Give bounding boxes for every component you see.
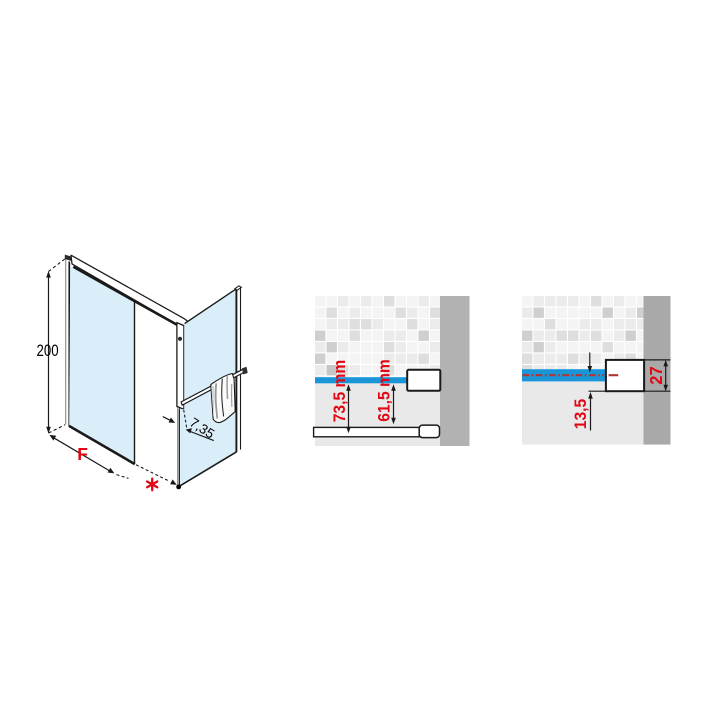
svg-text:13,5: 13,5 <box>571 399 590 429</box>
svg-text:73,5 mm: 73,5 mm <box>330 360 349 423</box>
svg-text:61,5 mm: 61,5 mm <box>375 359 394 422</box>
svg-text:F: F <box>77 444 88 464</box>
svg-text:27: 27 <box>645 366 666 384</box>
svg-text:200: 200 <box>37 342 59 361</box>
